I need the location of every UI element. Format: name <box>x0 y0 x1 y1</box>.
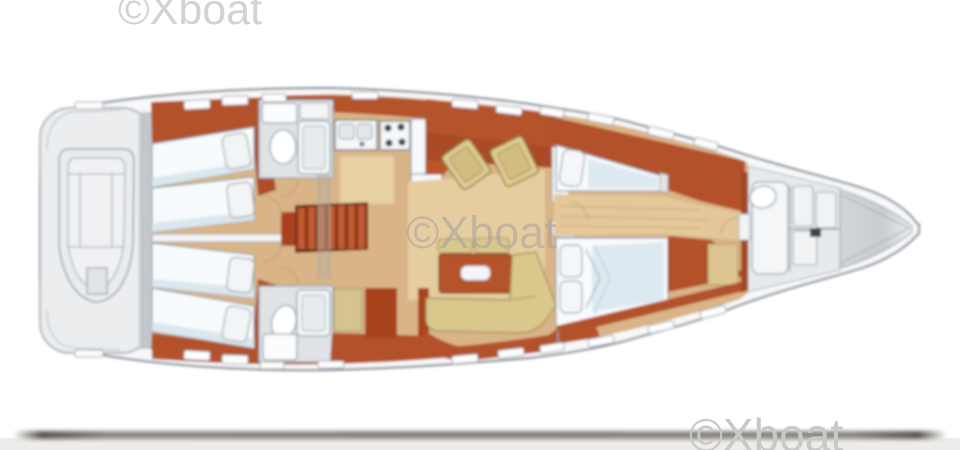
svg-text:©Xboat: ©Xboat <box>406 207 557 258</box>
svg-text:©Xboat: ©Xboat <box>689 409 843 450</box>
svg-text:©Xboat: ©Xboat <box>118 0 262 34</box>
